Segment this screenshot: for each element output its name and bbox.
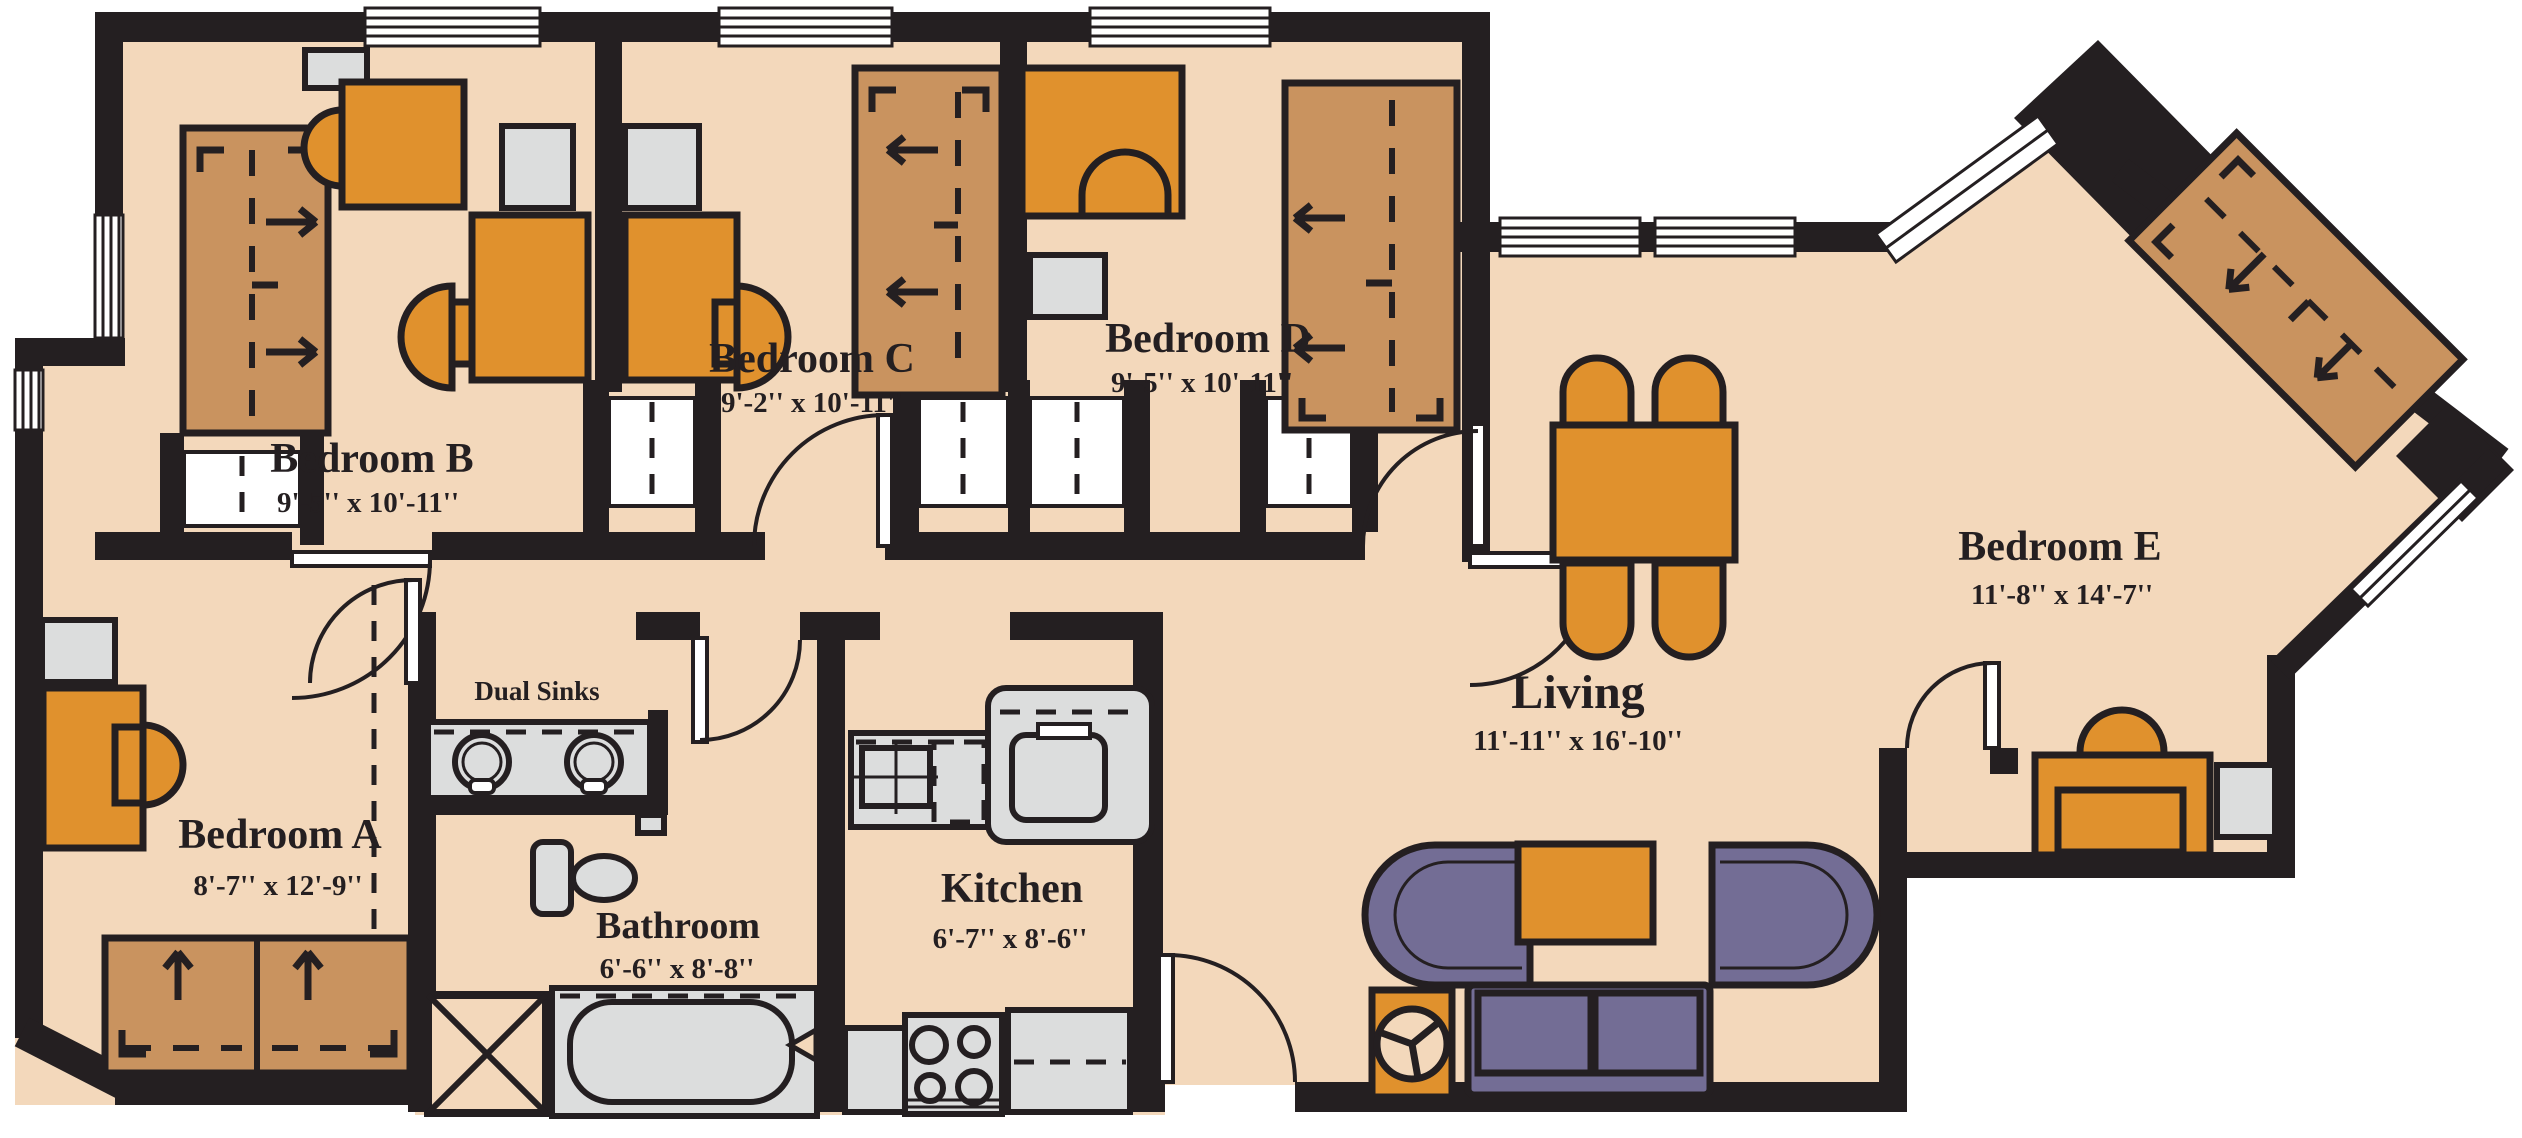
lounge-chair-right bbox=[1712, 845, 1877, 985]
side-table bbox=[1372, 990, 1452, 1097]
wall-living-right bbox=[1879, 748, 1907, 1112]
window bbox=[1090, 8, 1270, 46]
toilet-tank bbox=[533, 842, 571, 914]
room-dims-bedroom-c: 9'-2'' x 10'-11'' bbox=[721, 387, 903, 419]
room-dims-bedroom-d: 9'-5'' x 10'-11'' bbox=[1111, 367, 1293, 399]
stove bbox=[905, 1015, 1002, 1114]
wall-hall-1 bbox=[95, 532, 292, 560]
kitchen-counter-sink bbox=[851, 733, 988, 827]
room-label-bedroom-e: Bedroom E bbox=[1958, 524, 2161, 570]
desk-chair bbox=[115, 727, 143, 803]
room-label-living: Living bbox=[1511, 666, 1644, 719]
window bbox=[365, 8, 540, 46]
room-dims-living: 11'-11'' x 16'-10'' bbox=[1473, 725, 1682, 757]
room-label-kitchen: Kitchen bbox=[941, 866, 1083, 912]
wall-hall-3 bbox=[885, 532, 1365, 560]
kitchen-counter bbox=[845, 1028, 905, 1112]
desk-chair bbox=[1082, 152, 1168, 216]
lounge-chair-left bbox=[1365, 845, 1530, 985]
wall-closet-stub bbox=[1240, 380, 1266, 532]
sofa bbox=[1468, 985, 1710, 1095]
wall-closet-stub bbox=[695, 380, 721, 532]
bed-bedroom-b bbox=[183, 128, 328, 433]
monitor bbox=[42, 620, 115, 682]
room-label-bedroom-c: Bedroom C bbox=[709, 336, 915, 382]
wall-e-door-stub bbox=[1990, 748, 2018, 774]
wall-kitchen-top-1 bbox=[845, 612, 880, 640]
window bbox=[1500, 218, 1640, 256]
room-dims-bathroom: 6'-6'' x 8'-8'' bbox=[600, 953, 755, 985]
wall-closet-stub bbox=[160, 433, 184, 545]
wall-bath-kitchen-divider bbox=[817, 612, 845, 1110]
closet-door bbox=[1030, 398, 1124, 506]
coffee-table bbox=[1518, 844, 1653, 942]
room-dims-bedroom-b: 9'-5'' x 10'-11'' bbox=[277, 487, 459, 519]
toilet-bowl bbox=[573, 856, 635, 900]
window bbox=[95, 215, 123, 338]
bathtub bbox=[552, 988, 817, 1116]
room-label-bathroom: Bathroom bbox=[596, 905, 760, 947]
dresser bbox=[1030, 255, 1105, 317]
wall-hall-2 bbox=[432, 532, 765, 560]
room-dims-bedroom-a: 8'-7'' x 12'-9'' bbox=[193, 870, 362, 902]
floor-plan: Bedroom B 9'-5'' x 10'-11'' Bedroom C 9'… bbox=[0, 0, 2522, 1138]
room-label-bedroom-b: Bedroom B bbox=[270, 436, 473, 482]
window bbox=[1655, 218, 1795, 256]
dining-chair bbox=[1563, 563, 1631, 657]
wall-closet-stub bbox=[583, 380, 609, 532]
floor-plan-drawing: Bedroom B 9'-5'' x 10'-11'' Bedroom C 9'… bbox=[0, 0, 2522, 1138]
room-dims-bedroom-e: 11'-8'' x 14'-7'' bbox=[1971, 579, 2153, 611]
window bbox=[15, 370, 43, 430]
wall-b-left bbox=[95, 12, 123, 215]
monitor bbox=[625, 126, 699, 208]
room-label-bedroom-a: Bedroom A bbox=[178, 812, 382, 858]
bed-bedroom-a bbox=[105, 938, 410, 1073]
room-dims-kitchen: 6'-7'' x 8'-6'' bbox=[933, 923, 1088, 955]
bed-bedroom-d bbox=[1285, 83, 1457, 430]
fixture-small bbox=[638, 815, 664, 833]
kitchen-counter-right bbox=[1008, 1010, 1130, 1112]
range-oven bbox=[988, 688, 1152, 842]
wall-b-c-divider bbox=[595, 12, 622, 392]
room-label-bedroom-d: Bedroom D bbox=[1105, 316, 1311, 362]
closet-door bbox=[919, 398, 1008, 506]
closet-door bbox=[609, 398, 695, 506]
wall-bath-top-1 bbox=[636, 612, 700, 640]
dual-sink-counter bbox=[428, 722, 650, 798]
shaft-box bbox=[428, 995, 546, 1113]
annotation-dual-sinks: Dual Sinks bbox=[474, 676, 599, 706]
dining-table bbox=[1553, 425, 1735, 560]
dresser bbox=[2217, 765, 2275, 837]
window bbox=[719, 8, 892, 46]
oven-handle bbox=[1038, 724, 1090, 738]
monitor bbox=[502, 126, 573, 208]
wall-closet-stub bbox=[1008, 380, 1030, 532]
wall-closet-stub bbox=[1124, 380, 1150, 532]
dining-chair bbox=[1655, 563, 1723, 657]
wall-left bbox=[15, 338, 43, 1038]
